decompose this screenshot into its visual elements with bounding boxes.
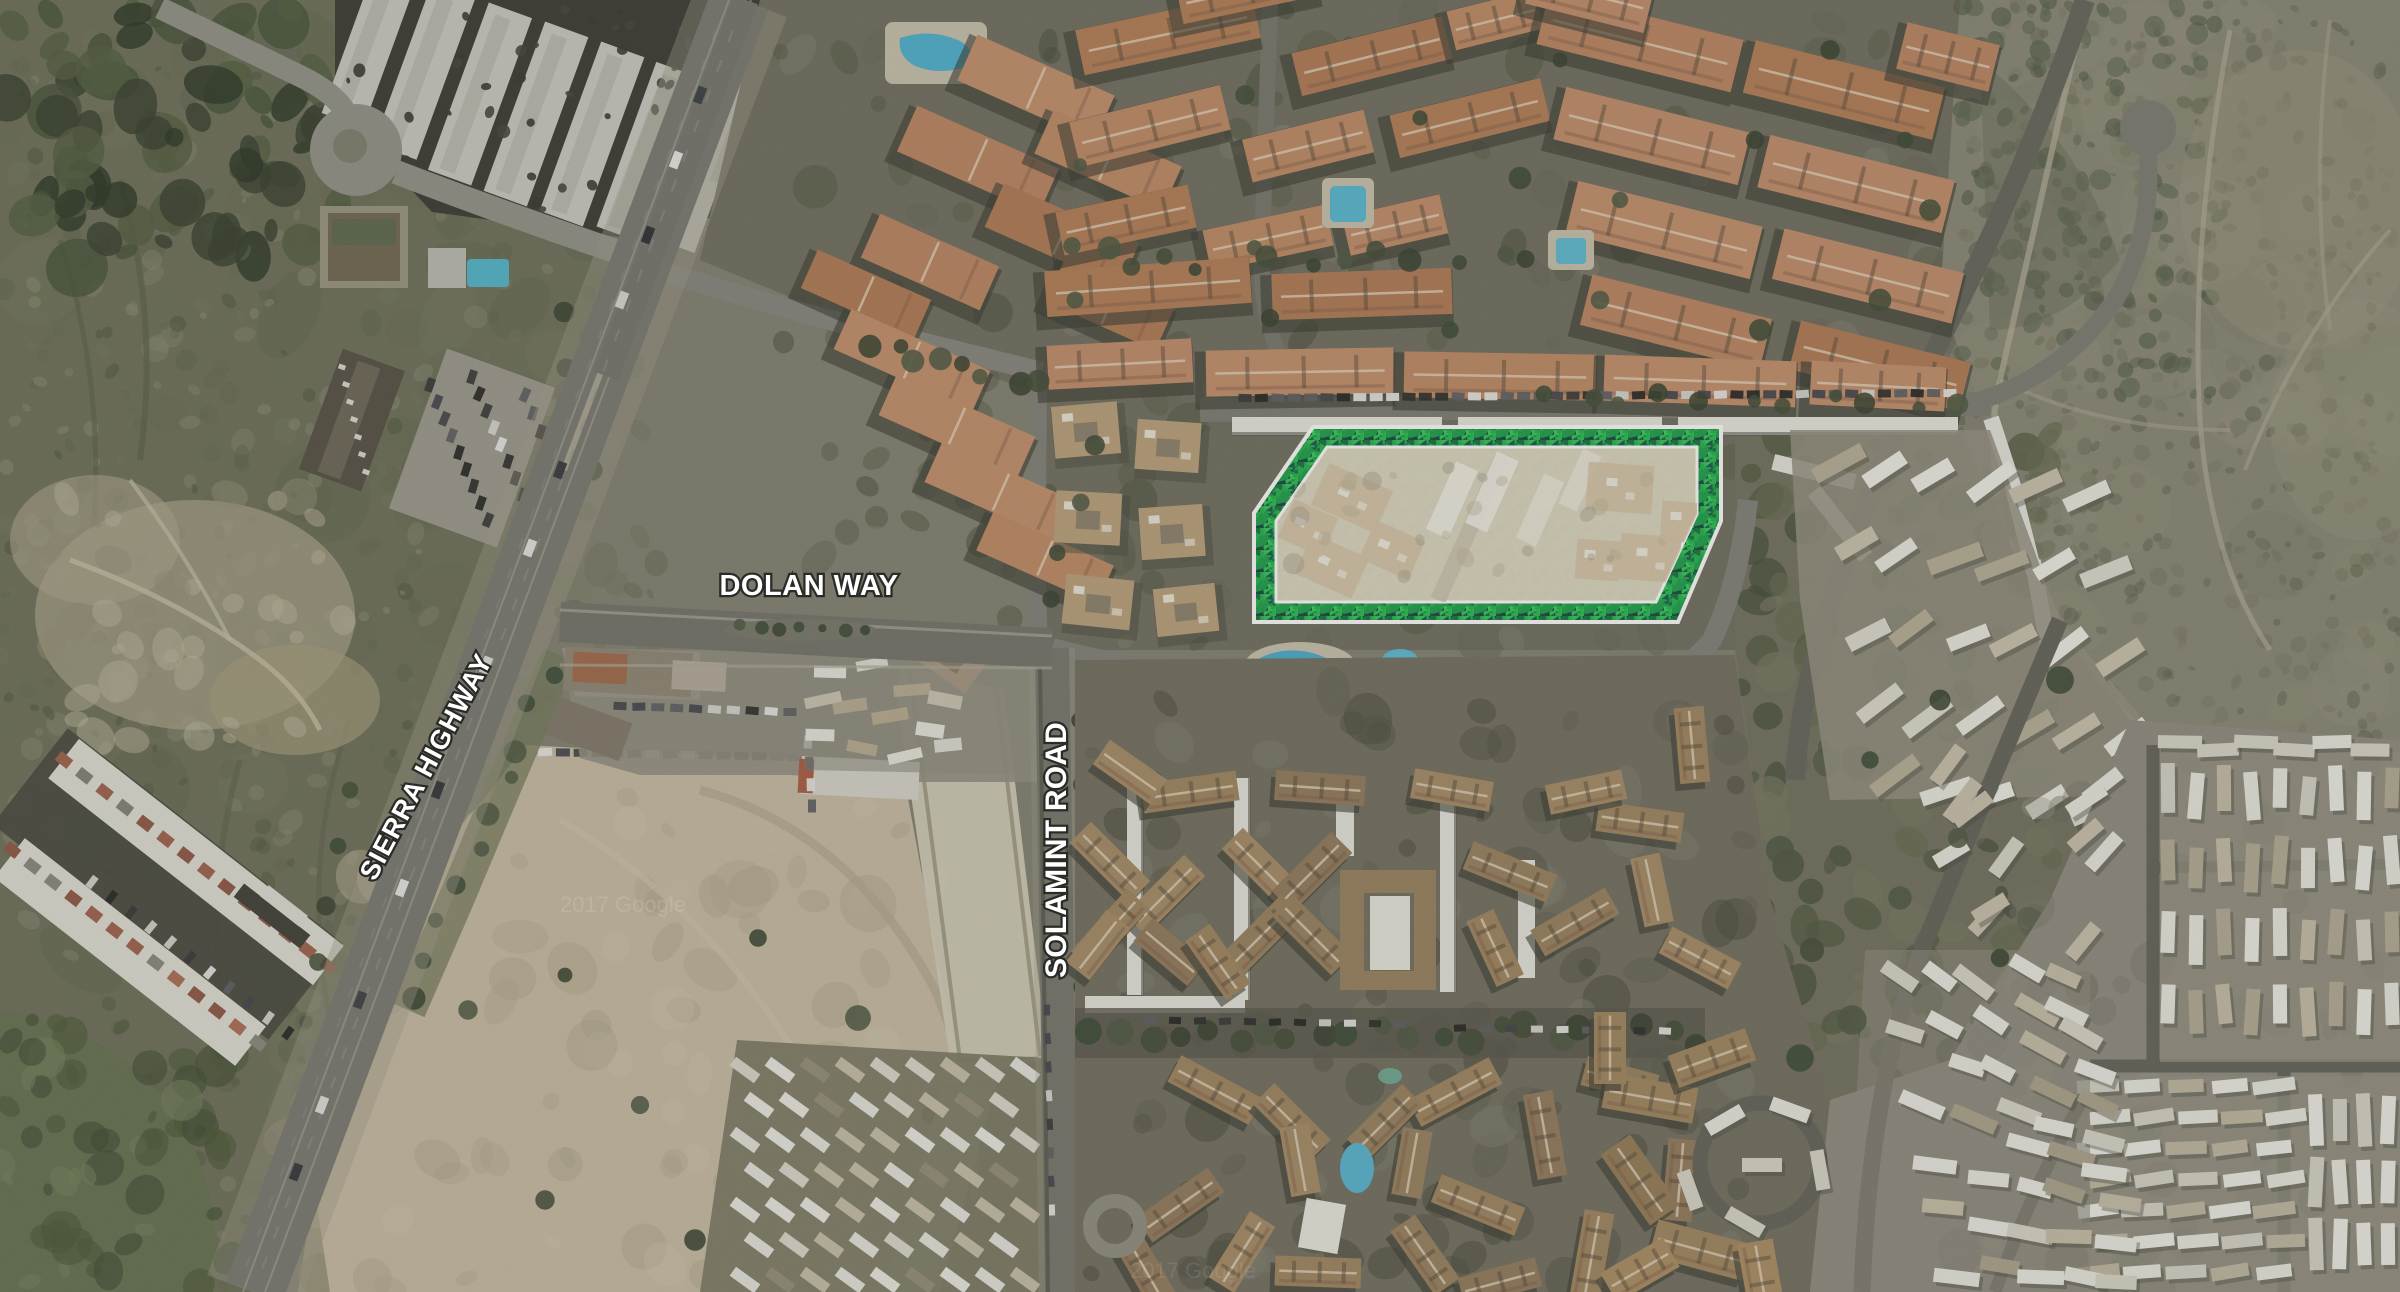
svg-text:DOLAN WAY: DOLAN WAY — [719, 570, 898, 602]
svg-text:2017 Google: 2017 Google — [560, 892, 686, 917]
svg-text:SOLAMINT ROAD: SOLAMINT ROAD — [1040, 722, 1073, 978]
svg-text:2017 Google: 2017 Google — [1130, 1258, 1256, 1283]
